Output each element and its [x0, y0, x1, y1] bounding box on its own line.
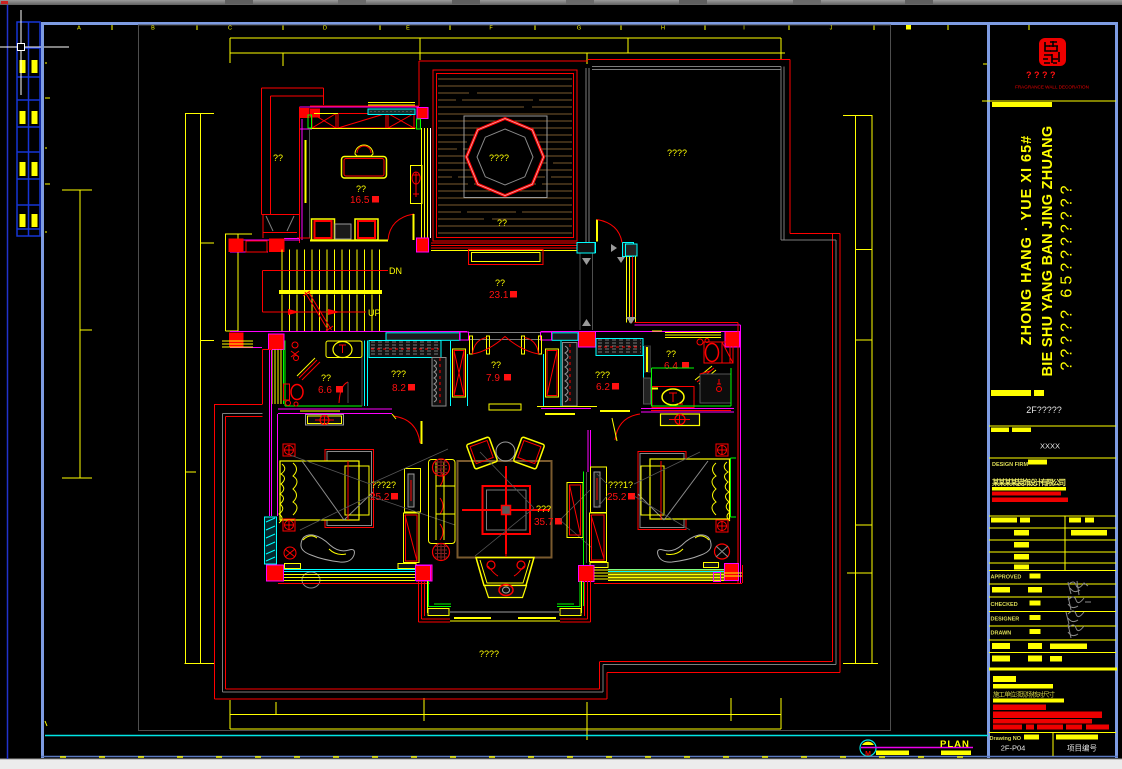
svg-text:PLAN: PLAN — [940, 739, 970, 750]
svg-text:E: E — [406, 26, 410, 32]
svg-text:??: ?? — [666, 349, 676, 359]
svg-text:BIE SHU YANG BAN JING ZHUANG: BIE SHU YANG BAN JING ZHUANG — [1040, 126, 1056, 377]
svg-text:XXXX: XXXX — [1040, 442, 1060, 451]
svg-text:???: ??? — [595, 370, 610, 380]
svg-text:8.2: 8.2 — [392, 383, 406, 394]
svg-text:ZHONG HANG · YUE XI 65#: ZHONG HANG · YUE XI 65# — [1019, 135, 1035, 345]
svg-text:CHECKED: CHECKED — [991, 602, 1018, 608]
svg-text:FRAGRANCE WALL DECORATION: FRAGRANCE WALL DECORATION — [1015, 85, 1089, 90]
svg-text:J: J — [830, 26, 833, 32]
svg-text:35.7: 35.7 — [534, 517, 554, 528]
svg-text:??: ?? — [273, 153, 283, 163]
svg-text:????: ???? — [1026, 70, 1058, 80]
svg-text:施工单位须现场核对尺寸: 施工单位须现场核对尺寸 — [993, 690, 1056, 699]
svg-text:????: ???? — [489, 153, 509, 163]
svg-text:DESIGN FIRM: DESIGN FIRM — [992, 462, 1028, 468]
svg-text:???: ??? — [391, 369, 406, 379]
svg-text:16.5: 16.5 — [350, 195, 370, 206]
svg-text:项目编号: 项目编号 — [1067, 743, 1097, 753]
svg-text:H: H — [661, 26, 665, 32]
svg-text:DESIGNER: DESIGNER — [991, 617, 1020, 623]
svg-text:6.6: 6.6 — [318, 385, 332, 396]
svg-text:DN: DN — [389, 266, 402, 276]
svg-text:UP: UP — [368, 308, 381, 318]
svg-text:???: ??? — [536, 504, 551, 514]
svg-text:2F-P04: 2F-P04 — [1001, 744, 1026, 753]
svg-text:??: ?? — [491, 360, 501, 370]
svg-text:Drawing NO: Drawing NO — [990, 736, 1022, 742]
svg-text:G: G — [577, 26, 581, 32]
svg-text:APPROVED: APPROVED — [991, 575, 1022, 581]
svg-text:C: C — [228, 26, 232, 32]
svg-text:DRAWN: DRAWN — [991, 631, 1012, 637]
svg-text:???1?: ???1? — [608, 480, 633, 490]
svg-text:????? 65???????: ????? 65??????? — [1059, 181, 1076, 370]
svg-text:A: A — [77, 26, 81, 32]
svg-text:D: D — [323, 26, 327, 32]
svg-text:B: B — [151, 26, 155, 32]
svg-text:????: ???? — [479, 649, 499, 659]
svg-text:7.9: 7.9 — [486, 373, 500, 384]
svg-text:2F?????: 2F????? — [1026, 405, 1062, 415]
svg-text:??: ?? — [356, 184, 366, 194]
svg-text:??: ?? — [321, 373, 331, 383]
svg-text:某某某某装饰设计有限公司: 某某某某装饰设计有限公司 — [992, 477, 1066, 487]
svg-text:??: ?? — [497, 218, 507, 228]
svg-text:23.1: 23.1 — [489, 290, 509, 301]
svg-text:M: M — [865, 751, 871, 758]
svg-text:??: ?? — [495, 278, 505, 288]
svg-text:6.4: 6.4 — [664, 361, 678, 372]
svg-text:????: ???? — [667, 148, 687, 158]
svg-text:25.2: 25.2 — [607, 492, 627, 503]
svg-text:6.2: 6.2 — [596, 382, 610, 393]
